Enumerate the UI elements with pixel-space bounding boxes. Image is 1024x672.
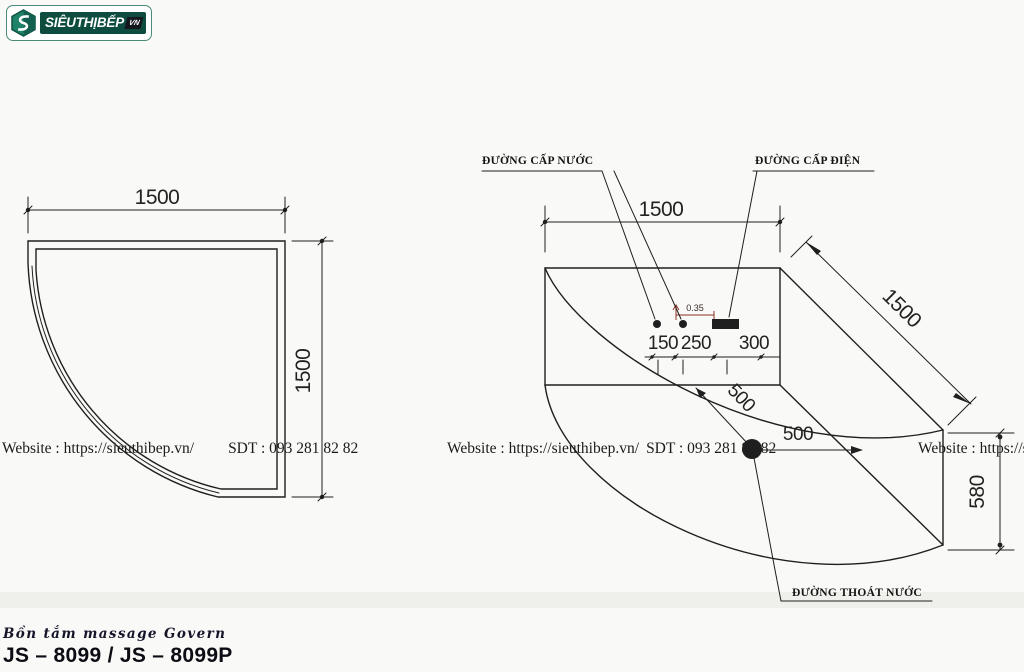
axon-side-dimension: 1500 (791, 236, 976, 425)
offset-150-value: 150 (648, 333, 678, 354)
water-supply-point-2 (679, 320, 687, 328)
axon-back-wall (545, 268, 780, 385)
axon-side-value: 1500 (878, 284, 926, 332)
logo-vn-badge: VN (125, 17, 144, 29)
water-supply-label: ĐƯỜNG CẤP NƯỚC (482, 152, 593, 167)
drain-diagonal-dimension: 500 (696, 380, 759, 444)
electric-supply-box (712, 319, 739, 329)
plan-rim-double-arc (32, 266, 219, 493)
cad-drawing: 1500 1500 1500 (0, 0, 1024, 672)
drain-side-value: 500 (783, 424, 813, 445)
product-model: JS – 8099 / JS – 8099P (3, 644, 233, 667)
axon-height-dimension: 580 (948, 429, 1014, 554)
level-annotation: 0.35 (673, 303, 714, 320)
fitting-offset-dimension: 150 250 300 (645, 333, 780, 374)
axon-width-dimension: 1500 (541, 198, 784, 252)
product-series: Bồn tắm massage Govern (3, 626, 233, 642)
axon-width-value: 1500 (639, 198, 684, 221)
logo-brand-text: SIÊUTHỊBẾP (45, 16, 124, 30)
plan-view: 1500 1500 (24, 186, 333, 501)
axon-view: 1500 1500 580 (482, 152, 1014, 601)
level-value: 0.35 (686, 303, 704, 313)
electric-supply-label: ĐƯỜNG CẤP ĐIỆN (755, 152, 861, 167)
footer-caption: Bồn tắm massage Govern JS – 8099 / JS – … (3, 626, 233, 667)
plan-depth-dimension: 1500 (292, 237, 333, 501)
drain-label: ĐƯỜNG THOÁT NƯỚC (792, 585, 922, 599)
offset-300-value: 300 (739, 333, 769, 354)
logo-hexagon-icon (10, 9, 37, 37)
drain-side-dimension: 500 (762, 424, 863, 454)
axon-height-value: 580 (966, 475, 989, 509)
product-dimension-sheet: Website : https://sieuthibep.vn/SDT : 09… (0, 0, 1024, 672)
plan-outer-outline (28, 241, 285, 497)
sieuthibep-logo: SIÊUTHỊBẾP VN (6, 5, 152, 41)
plan-depth-value: 1500 (292, 349, 315, 394)
electric-supply-callout: ĐƯỜNG CẤP ĐIỆN (729, 152, 874, 317)
water-supply-point-1 (653, 320, 661, 328)
plan-inner-rim (36, 249, 277, 489)
plan-width-value: 1500 (135, 186, 180, 209)
plan-width-dimension: 1500 (24, 186, 289, 233)
drain-callout: ĐƯỜNG THOÁT NƯỚC (754, 458, 932, 601)
logo-wordmark-box: SIÊUTHỊBẾP VN (40, 12, 146, 34)
drain-point (742, 439, 762, 459)
offset-250-value: 250 (681, 333, 711, 354)
water-supply-callout: ĐƯỜNG CẤP NƯỚC (482, 152, 681, 319)
